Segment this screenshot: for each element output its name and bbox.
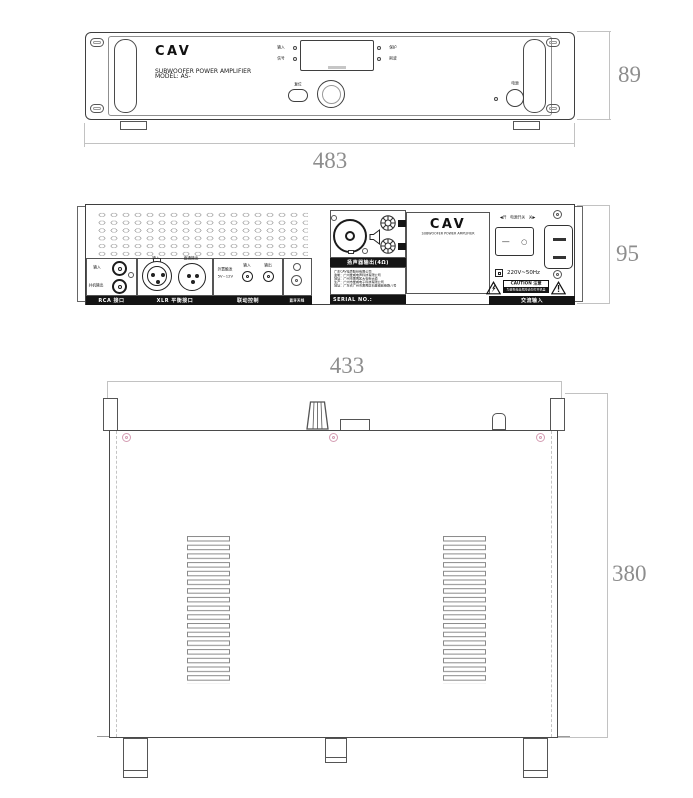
antenna-connector-pin	[295, 279, 298, 282]
rca-output-label: 并机输出	[82, 282, 110, 290]
xlr-pin	[195, 274, 199, 278]
reset-button-label-text: 复位	[294, 83, 301, 87]
trigger-text-line2-text: 5V~12V	[217, 275, 232, 279]
trigger-in-label-text: 输入	[243, 264, 250, 268]
iec-inlet	[544, 225, 573, 269]
caution-title: CAUTION 注意	[504, 281, 548, 287]
dimension-front-width-text: 483	[313, 149, 348, 172]
manufacturer-info-box: 广东CAV电声股份有限公司 监制：广州爱威电声科技有限公司 地址：广州市番禺区大…	[330, 267, 406, 295]
screw-inner	[556, 213, 559, 216]
trigger-text-line1: 外置触发	[213, 266, 237, 273]
trigger-out-label: 输出	[259, 262, 277, 269]
rca-output-jack	[112, 279, 127, 294]
top-foot-left	[123, 738, 148, 778]
power-led	[494, 97, 498, 101]
caution-subtext: 为避免电击危险请勿打开机盖	[504, 287, 548, 293]
led-signal	[293, 57, 297, 61]
iec-prong	[553, 256, 566, 259]
front-display	[300, 40, 374, 71]
trigger-text-line1-text: 外置触发	[218, 268, 233, 272]
dimension-line	[85, 143, 575, 144]
volume-knob-inner	[322, 85, 341, 104]
speaker-output-bar: 扬声器输出(4Ω)	[330, 258, 406, 267]
rca-input-jack	[112, 261, 127, 276]
xlr-pin	[191, 280, 195, 284]
rack-screw-slot	[546, 38, 560, 47]
rack-screw-slot-inner	[93, 107, 101, 110]
brand-logo: CAV	[155, 44, 225, 58]
led-protect	[377, 46, 381, 50]
xlr-section-bar: XLR 平衡接口	[137, 296, 213, 305]
top-foot-right	[523, 738, 548, 778]
foot-pad-line	[124, 770, 147, 771]
foot-pad-line	[326, 757, 346, 758]
rack-screw-slot	[90, 104, 104, 113]
speakon-inner	[345, 231, 355, 241]
model-label-text: MODEL: AS-	[155, 73, 191, 80]
rear-brand-subtitle: SUBWOOFER POWER AMPLIFIER	[406, 231, 490, 237]
fold-line-right	[551, 431, 552, 737]
binding-post-knob	[379, 214, 397, 232]
info-line: 地址：广东省广州市番禺区石基镇前锋路八号	[334, 284, 406, 287]
reset-button-label: 复位	[283, 82, 313, 88]
led-label-protect: 保护	[382, 44, 404, 52]
xlr-pin	[156, 280, 160, 284]
warning-triangle-lightning-icon	[486, 280, 501, 294]
trigger-text-line2: 5V~12V	[213, 273, 237, 280]
rocker-switch: — ○	[495, 227, 534, 256]
top-screw-pink-inner	[539, 436, 542, 439]
ac-input-bar: 交流输入	[489, 296, 575, 305]
rear-rack-tab-right	[574, 206, 583, 302]
power-button	[506, 89, 524, 107]
volume-knob	[317, 80, 345, 108]
xlr-pin	[161, 273, 165, 277]
rca-input-label: 输入	[86, 264, 108, 272]
manufacturer-info-lines: 广东CAV电声股份有限公司 监制：广州爱威电声科技有限公司 地址：广州市番禺区大…	[334, 270, 406, 287]
antenna-hole	[293, 263, 301, 271]
rocker-switch-off-mark: ○	[521, 238, 527, 246]
dimension-extension-line	[577, 205, 610, 206]
dimension-line	[609, 31, 610, 120]
rear-brand-subtitle-text: SUBWOOFER POWER AMPLIFIER	[422, 232, 475, 235]
dimension-line	[107, 381, 562, 382]
foot-pad-line	[524, 770, 547, 771]
led-label-signal: 信号	[270, 55, 292, 63]
class2-inner-square	[498, 272, 501, 275]
binding-post-terminal	[398, 243, 406, 250]
caution-title-text: CAUTION 注意	[511, 282, 542, 286]
rca-input-jack-pin	[118, 267, 122, 271]
warning-triangle-exclamation-icon	[551, 280, 566, 294]
model-label: MODEL: AS-	[155, 63, 255, 68]
class2-insulation-icon	[495, 269, 503, 277]
top-rack-ear-right	[550, 398, 565, 431]
led-clip	[377, 57, 381, 61]
power-switch-label-text: ◀开 电源开关 关▶	[500, 216, 535, 220]
serial-number-bar: SERIAL NO.:	[330, 295, 406, 304]
rca-section-bar: RCA 接口	[86, 296, 137, 305]
dimension-front-width: 483	[300, 147, 360, 173]
top-chassis-body	[109, 430, 558, 738]
amplifier-dimension-drawing: CAV SUBWOOFER POWER AMPLIFIER MODEL: AS-…	[0, 0, 693, 798]
screw	[128, 272, 134, 278]
rca-input-label-text: 输入	[93, 266, 100, 270]
trigger-in-jack	[242, 271, 253, 282]
xlr-male-connector	[178, 263, 206, 291]
rack-screw-slot-inner	[549, 41, 557, 44]
antenna-section-bar: 蓝牙天线	[283, 296, 312, 305]
led-label-clip: 削波	[382, 55, 404, 63]
binding-post-terminal	[398, 220, 406, 227]
top-screw-pink	[122, 433, 131, 442]
power-switch-label: ◀开 电源开关 关▶	[486, 214, 550, 221]
caution-box: CAUTION 注意 为避免电击危险请勿打开机盖	[503, 280, 549, 293]
rear-brand-logo: CAV	[406, 217, 490, 231]
trigger-in-jack-hole	[246, 275, 249, 278]
top-screw-pink-inner	[332, 436, 335, 439]
xlr-output-label: 直通输出	[176, 256, 206, 262]
rack-screw-slot	[546, 104, 560, 113]
rocker-switch-on-mark: —	[502, 237, 510, 246]
top-screw-pink	[536, 433, 545, 442]
dimension-extension-line	[577, 31, 611, 32]
rca-output-jack-pin	[118, 285, 122, 289]
screw	[362, 248, 368, 254]
xlr-pin	[151, 273, 155, 277]
top-rack-ear-left	[103, 398, 118, 431]
binding-post-knob	[379, 237, 397, 255]
xlr-female-connector	[142, 261, 172, 291]
dimension-top-width-text: 433	[330, 354, 365, 377]
top-screw-pink	[329, 433, 338, 442]
dimension-line	[609, 205, 610, 304]
dimension-extension-line	[107, 382, 108, 398]
dimension-extension-line	[558, 737, 608, 738]
front-handle-right	[523, 39, 546, 113]
top-knob-profile	[305, 401, 330, 430]
led-label-input: 输入	[270, 44, 292, 52]
trigger-out-jack	[263, 271, 274, 282]
rack-screw-slot-inner	[549, 107, 557, 110]
power-button-label: 电源	[502, 80, 528, 87]
vent-grille	[96, 211, 308, 257]
dimension-top-width: 433	[317, 352, 377, 378]
dimension-extension-line	[577, 303, 610, 304]
rack-screw-slot	[90, 38, 104, 47]
led-label-clip-text: 削波	[389, 57, 396, 61]
rack-screw-slot-inner	[93, 41, 101, 44]
top-foot-middle	[325, 738, 347, 763]
dimension-front-height: 89	[618, 63, 641, 86]
dimension-extension-line	[565, 393, 608, 394]
edge-tick	[97, 736, 109, 737]
front-foot-right	[513, 121, 540, 130]
xlr-pin	[187, 274, 191, 278]
top-screw-pink-inner	[125, 436, 128, 439]
voltage-label: 220V~50Hz	[507, 269, 557, 277]
trigger-out-label-text: 输出	[264, 264, 271, 268]
iec-prong	[553, 238, 566, 241]
trigger-in-label: 输入	[238, 262, 256, 269]
dimension-rear-height: 95	[616, 242, 639, 265]
dimension-top-depth: 380	[612, 562, 647, 585]
top-vent-slots-left	[187, 536, 231, 684]
speakon-notch	[348, 250, 354, 254]
trigger-section-bar: 联动控制	[213, 296, 283, 305]
led-label-input-text: 输入	[277, 46, 284, 50]
dimension-extension-line	[577, 119, 611, 120]
display-window-notch	[328, 66, 346, 69]
top-button-profile	[492, 413, 506, 430]
led-label-protect-text: 保护	[389, 46, 396, 50]
front-foot-left	[120, 121, 147, 130]
reset-button	[288, 89, 308, 102]
led-input	[293, 46, 297, 50]
front-handle-left	[114, 39, 137, 113]
dimension-extension-line	[561, 382, 562, 398]
led-label-signal-text: 信号	[277, 57, 284, 61]
rca-output-label-text: 并机输出	[89, 284, 104, 288]
screw	[331, 215, 337, 221]
dimension-line	[607, 393, 608, 738]
trigger-out-jack-hole	[267, 275, 270, 278]
fold-line-left	[116, 431, 117, 737]
antenna-section-bar-text: 蓝牙天线	[290, 299, 305, 302]
screw	[553, 210, 562, 219]
antenna-connector	[291, 275, 302, 286]
xlr-output-label-text: 直通输出	[184, 257, 199, 261]
power-button-label-text: 电源	[511, 82, 518, 86]
caution-subtext-text: 为避免电击危险请勿打开机盖	[507, 289, 546, 292]
rear-brand-logo-text: CAV	[430, 217, 466, 232]
top-vent-slots-right	[443, 536, 487, 684]
